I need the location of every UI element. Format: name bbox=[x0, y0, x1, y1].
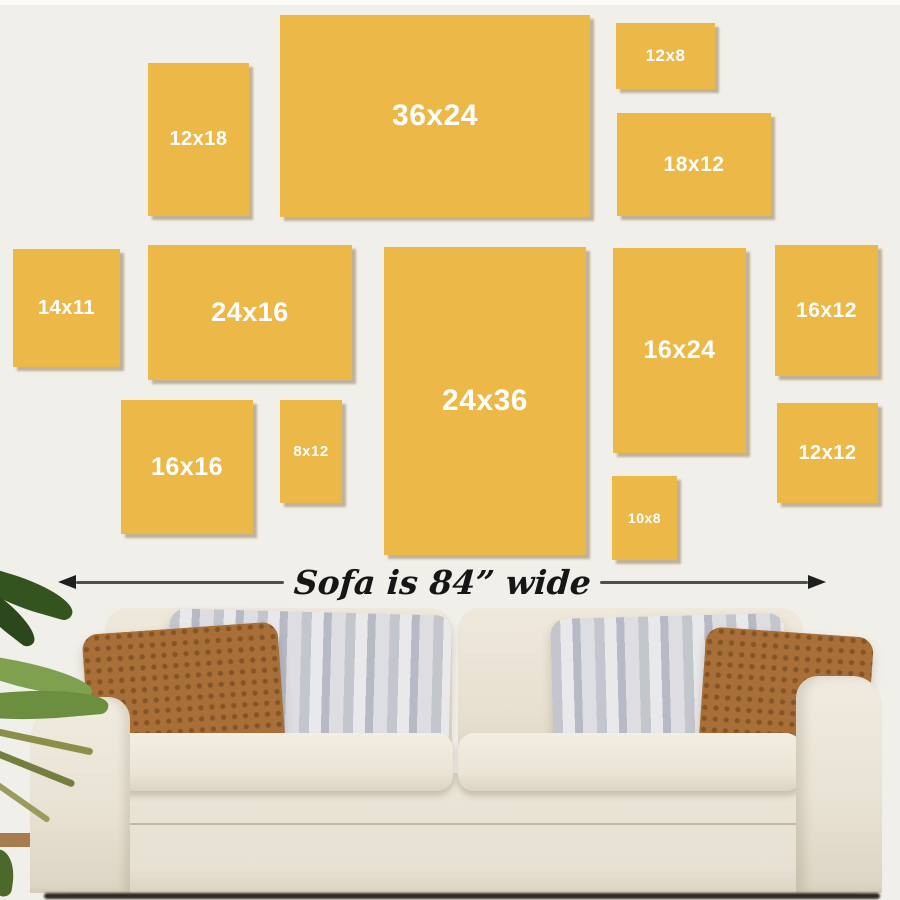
floor-shadow bbox=[44, 893, 880, 899]
size-guide-graphic: 12x1836x2412x818x1214x1124x1624x3616x241… bbox=[0, 0, 900, 900]
arrow-left-icon bbox=[58, 575, 76, 589]
sofa-width-label: Sofa is 84” wide bbox=[292, 563, 592, 602]
sofa-scene bbox=[0, 0, 900, 900]
arrow-line-left bbox=[76, 581, 284, 584]
arrow-right-icon bbox=[808, 575, 826, 589]
plant-leaf-icon bbox=[0, 848, 17, 897]
sofa-arm-right bbox=[796, 676, 882, 893]
sofa-seat-cushion-right bbox=[458, 733, 802, 791]
sofa-base-seam bbox=[85, 823, 842, 825]
sofa-arm-left bbox=[30, 697, 130, 893]
sofa-seat-cushion-left bbox=[112, 733, 453, 791]
arrow-line-right bbox=[600, 581, 808, 584]
sofa-width-annotation: Sofa is 84” wide bbox=[58, 560, 826, 604]
sofa-base bbox=[52, 773, 875, 895]
